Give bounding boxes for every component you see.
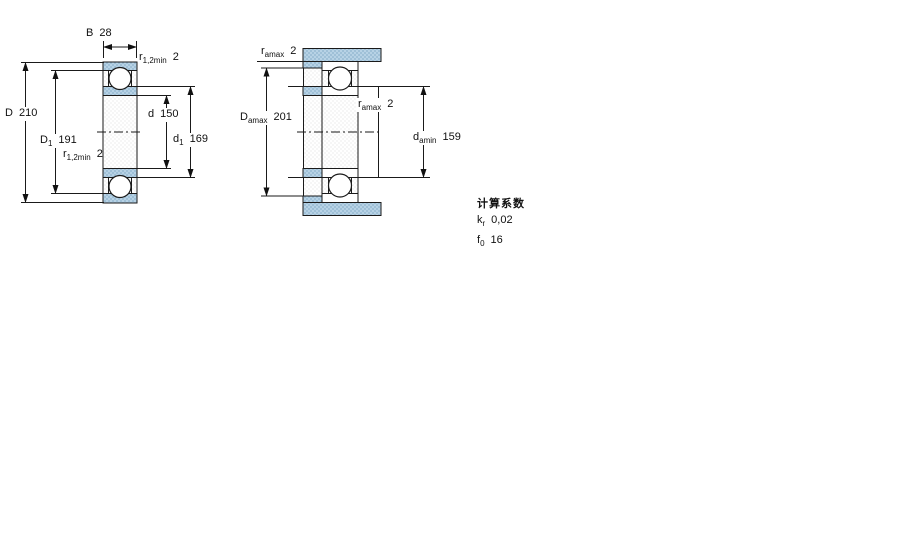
factor-row-kr: kr0,02 (477, 213, 525, 231)
drawing-linework (0, 0, 900, 560)
ball-top (109, 68, 131, 90)
shaft-shoulder-bottom (303, 169, 322, 178)
bearing-dimension-drawing: B28 r1,2min2 D210 D1191 r1,2min2 d150 d1… (0, 0, 900, 560)
dimension-label-width-B: B28 (86, 27, 112, 41)
dimension-label-shaft-damin: damin159 (411, 131, 463, 145)
dimension-label-bore-d: d150 (146, 108, 180, 122)
calculation-factors-block: 计算系数 kr0,02 f016 (477, 195, 525, 251)
housing-shoulder-top (303, 62, 322, 69)
ball-bottom-right (329, 174, 352, 197)
dimension-label-r12min-top: r1,2min2 (139, 51, 179, 65)
dimension-D-extensions (21, 63, 104, 203)
dimension-label-shoulder-D1: D1191 (38, 134, 79, 148)
dimension-label-ramax-top: ramax2 (261, 45, 296, 59)
ball-top-right (329, 67, 352, 90)
shaft-shoulder-top (303, 87, 322, 96)
dimension-label-housing-Damax: Damax201 (238, 111, 294, 125)
left-bearing-cross-section (97, 62, 143, 203)
dimension-label-outer-diameter-D: D210 (3, 107, 39, 121)
housing-top (303, 49, 381, 62)
housing-bottom (303, 203, 381, 216)
dimension-label-shoulder-d1: d1169 (171, 133, 210, 147)
dimension-D1-extensions (51, 71, 104, 194)
ball-bottom (109, 176, 131, 198)
dimension-label-r12min-mid: r1,2min2 (63, 148, 103, 162)
factor-row-f0: f016 (477, 233, 525, 251)
housing-shoulder-bottom (303, 196, 322, 203)
dimension-label-ramax-inner: ramax2 (356, 98, 395, 112)
dimension-B-extensions (104, 41, 137, 58)
right-mounting-section (288, 49, 381, 216)
calculation-factors-title: 计算系数 (477, 195, 525, 211)
dimension-d-extensions (137, 96, 171, 169)
